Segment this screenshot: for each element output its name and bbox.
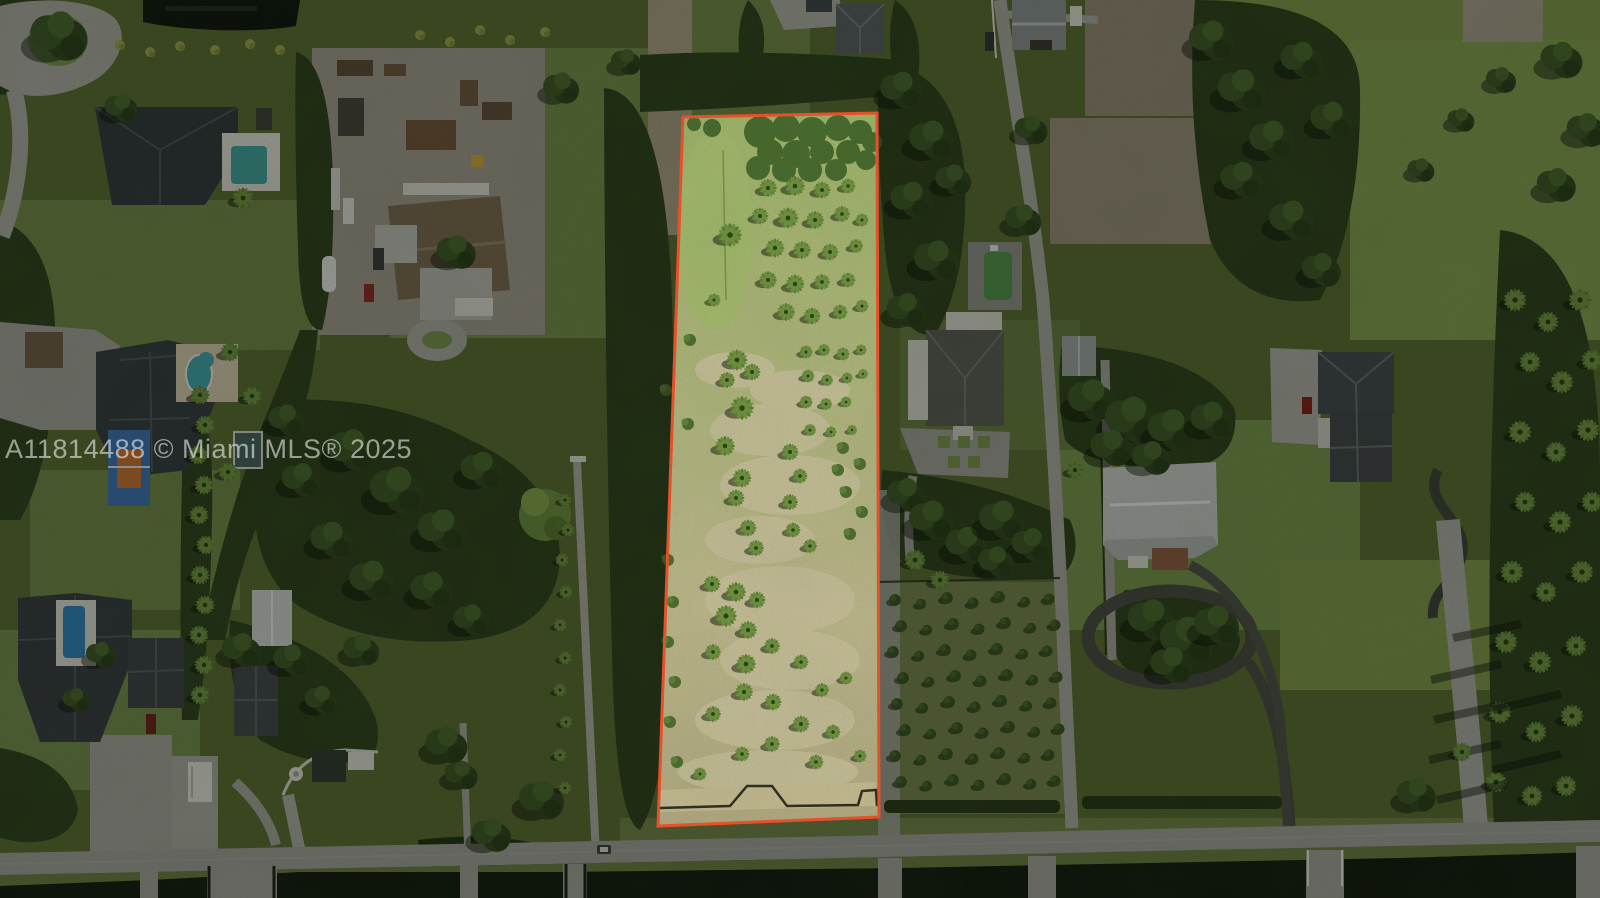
mls-watermark: A11814488 © Miami MLS® 2025 — [5, 434, 412, 465]
aerial-photo: A11814488 © Miami MLS® 2025 — [0, 0, 1600, 898]
